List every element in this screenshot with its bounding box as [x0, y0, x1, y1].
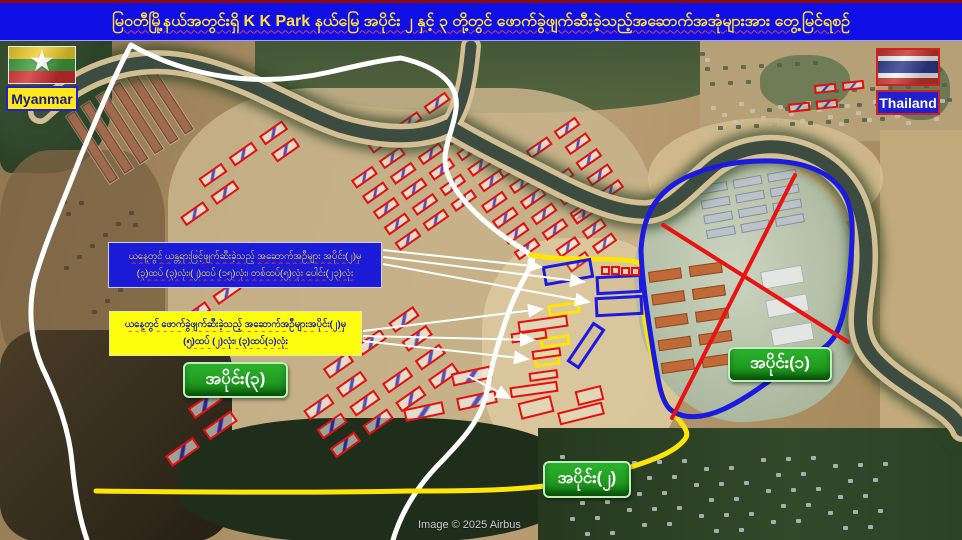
destroyed-building-outline	[330, 431, 361, 458]
village-house	[839, 122, 844, 126]
destroyed-building-outline	[564, 132, 591, 155]
destroyed-building-outline	[373, 197, 400, 220]
village-house	[710, 82, 715, 86]
annotated-satellite-map: မြဝတီမြို့နယ်အတွင်းရှိ K K Park နယ်မြေ အ…	[0, 0, 962, 540]
building-roof	[661, 359, 695, 374]
village-house	[862, 118, 867, 122]
red-outlined-building	[611, 266, 620, 275]
red-outlined-building	[517, 315, 568, 334]
village-house	[791, 488, 796, 492]
yellow-callout-line1: ယနေ့တွင် ဖောက်ခွဲဖျက်ဆီးခဲ့သည့် အဆောက်အဦ…	[125, 318, 346, 332]
village-house	[77, 255, 82, 259]
destroyed-building-outline	[503, 222, 530, 245]
building-roof	[740, 219, 770, 233]
blue-callout-box: ယနေ့တွင် ယန္တရားဖြင့်ဖျက်ဆီးခဲ့သည့် အဆော…	[108, 242, 382, 288]
village-house	[105, 299, 110, 303]
destroyed-building-outline	[582, 218, 607, 240]
village-house	[785, 107, 790, 111]
village-house	[585, 532, 590, 536]
village-house	[637, 492, 642, 496]
red-outlined-building	[557, 402, 605, 426]
destroyed-building-outline	[351, 166, 378, 189]
village-house	[672, 475, 677, 479]
destroyed-building-outline	[520, 187, 547, 210]
white-boundary-left	[31, 45, 131, 540]
village-house	[90, 244, 95, 248]
destroyed-building-outline	[445, 123, 472, 146]
destroyed-building-outline	[422, 208, 449, 231]
building-roof	[111, 82, 163, 155]
terrain-base	[0, 41, 962, 540]
village-house	[833, 464, 838, 468]
village-house	[749, 512, 754, 516]
village-house	[610, 531, 615, 535]
village-house	[803, 106, 808, 110]
destroyed-building-outline	[816, 99, 839, 110]
village-house	[722, 113, 727, 117]
pointer-arrow	[363, 341, 528, 359]
destroyed-building-outline	[450, 189, 477, 212]
village-house	[759, 64, 764, 68]
village-house	[761, 116, 766, 120]
village-house	[806, 503, 811, 507]
village-house	[845, 104, 850, 108]
destroyed-building-outline	[428, 362, 459, 389]
village-house	[839, 104, 844, 108]
village-house	[92, 310, 97, 314]
building-roof	[127, 72, 179, 145]
building-roof	[66, 111, 118, 184]
destroyed-building-outline	[394, 228, 421, 251]
village-house	[711, 106, 716, 110]
destroyed-building-outline	[514, 237, 541, 260]
white-boundary-main	[131, 45, 532, 540]
red-cross-line	[663, 225, 848, 342]
village-house	[853, 510, 858, 514]
village-house	[66, 212, 71, 216]
village-house	[817, 108, 822, 112]
village-house	[934, 117, 939, 121]
pointer-arrow	[383, 264, 589, 302]
destroyed-building-outline	[396, 111, 423, 134]
building-roof	[775, 213, 805, 227]
destroyed-building-outline	[509, 171, 536, 194]
village-house	[744, 481, 749, 485]
building-roof	[96, 91, 148, 164]
blue-outlined-building	[542, 258, 595, 286]
blue-outlined-building	[596, 274, 643, 295]
destroyed-building-outline	[259, 120, 288, 145]
destroyed-building-outline	[203, 410, 238, 440]
tree-patch-top-right-1	[760, 55, 850, 110]
destroyed-building-outline	[415, 344, 446, 371]
village-house	[736, 125, 741, 129]
village-house	[642, 523, 647, 527]
destroyed-building-outline	[417, 142, 444, 165]
destroyed-building-outline	[303, 394, 334, 421]
village-house	[694, 483, 699, 487]
destroyed-building-outline	[434, 107, 461, 130]
village-house	[947, 98, 952, 102]
village-house	[750, 109, 755, 113]
flag-sheen	[9, 47, 75, 83]
building-roof	[651, 290, 685, 305]
village-house	[848, 479, 853, 483]
section-2-label: အပိုင်း(၂)	[543, 461, 631, 498]
village-house	[777, 63, 782, 67]
village-house	[856, 111, 861, 115]
myanmar-label: Myanmar	[6, 86, 78, 111]
village-house	[821, 105, 826, 109]
destroyed-building-outline	[368, 131, 395, 154]
village-house	[781, 504, 786, 508]
village-house	[816, 487, 821, 491]
destroyed-building-outline	[569, 198, 596, 221]
village-house	[828, 511, 833, 515]
destroyed-building-outline	[526, 136, 553, 159]
destroyed-building-outline	[541, 218, 568, 241]
village-house	[741, 65, 746, 69]
village-house	[595, 516, 600, 520]
village-house	[705, 67, 710, 71]
pointer-arrow	[383, 257, 584, 282]
yellow-outlined-building	[533, 353, 560, 368]
red-outlined-building	[575, 385, 605, 406]
village-house	[786, 457, 791, 461]
village-house	[880, 117, 885, 121]
red-outlined-building	[631, 267, 640, 276]
destroyed-building-outline	[566, 251, 591, 273]
building-roof	[695, 307, 729, 322]
flag-sheen	[878, 50, 938, 84]
village-house	[632, 461, 637, 465]
village-house	[858, 463, 863, 467]
village-house	[796, 519, 801, 523]
village-house	[705, 58, 710, 62]
destroyed-building-outline	[388, 306, 419, 333]
village-house	[709, 498, 714, 502]
village-house	[800, 119, 805, 123]
village-house	[772, 123, 777, 127]
destroyed-building-outline	[586, 163, 613, 186]
destroyed-building-outline	[592, 232, 617, 254]
river	[452, 46, 471, 122]
village-house	[64, 266, 69, 270]
river-sandbank	[452, 46, 471, 122]
village-house	[776, 473, 781, 477]
destroyed-building-outline	[558, 183, 585, 206]
village-house	[723, 66, 728, 70]
destroyed-building-outline	[401, 177, 428, 200]
village-house	[129, 211, 134, 215]
village-house	[852, 88, 857, 92]
river-sandbank	[648, 118, 883, 238]
village-house	[828, 115, 833, 119]
fields-right	[880, 130, 962, 440]
building-roof	[738, 204, 768, 218]
pointer-arrow	[383, 250, 541, 267]
building-roof	[654, 313, 688, 328]
village-house	[728, 81, 733, 85]
village-house	[942, 83, 947, 87]
destroyed-building-outline	[814, 83, 837, 94]
village-house	[883, 462, 888, 466]
village-house	[838, 495, 843, 499]
red-outlined-building	[601, 266, 610, 275]
imagery-attribution: Image © 2025 Airbus	[418, 519, 521, 531]
village-house	[772, 123, 777, 127]
village-house	[719, 482, 724, 486]
building-roof	[706, 225, 736, 239]
village-house	[868, 525, 873, 529]
building-roof	[767, 169, 797, 183]
destroyed-building-outline	[492, 206, 519, 229]
village-house	[118, 288, 123, 292]
village-house	[580, 501, 585, 505]
village-house	[867, 118, 872, 122]
village-house	[627, 508, 632, 512]
destroyed-building-outline	[165, 437, 200, 467]
destroyed-building-outline	[555, 236, 580, 258]
village-house	[857, 103, 862, 107]
red-outlined-building	[517, 395, 554, 420]
red-outlined-building	[532, 347, 562, 360]
thailand-flag	[876, 48, 940, 86]
yellow-outlined-building	[539, 334, 570, 349]
destroyed-building-outline	[571, 203, 596, 225]
building-roof	[701, 196, 731, 210]
blue-outlined-building	[595, 295, 644, 317]
destroyed-building-outline	[336, 371, 367, 398]
destroyed-building-outline	[554, 117, 581, 140]
building-roof	[81, 101, 133, 174]
destroyed-building-outline	[575, 148, 602, 171]
village-house	[699, 514, 704, 518]
village-house	[724, 513, 729, 517]
village-house	[560, 455, 565, 459]
thailand-label: Thailand	[876, 90, 940, 115]
destroyed-building-outline	[401, 325, 432, 352]
red-outlined-building	[510, 329, 547, 344]
village-house	[662, 491, 667, 495]
village-house	[940, 99, 945, 103]
destroyed-building-outline	[597, 179, 624, 202]
destroyed-building-outline	[403, 401, 445, 422]
village-house	[746, 80, 751, 84]
forest-strip-top	[255, 41, 720, 113]
village-house	[700, 52, 705, 56]
red-outlined-building	[621, 267, 630, 276]
village-house	[570, 517, 575, 521]
destroyed-building-outline	[531, 202, 558, 225]
destroyed-building-outline	[271, 137, 300, 162]
village-house	[771, 520, 776, 524]
village-house	[811, 456, 816, 460]
village-house	[739, 528, 744, 532]
building-roof	[689, 262, 723, 277]
destroyed-building-outline	[439, 173, 466, 196]
building-roof	[765, 293, 809, 318]
building-roof	[698, 181, 728, 195]
village-house	[682, 459, 687, 463]
village-house	[761, 458, 766, 462]
building-roof	[770, 322, 814, 347]
village-house	[844, 119, 849, 123]
construction-ground-section2	[482, 238, 682, 470]
village-house	[790, 122, 795, 126]
destroyed-building-outline	[547, 167, 574, 190]
red-outlined-building	[509, 381, 558, 399]
building-roof	[772, 198, 802, 212]
destroyed-building-outline	[180, 201, 209, 226]
destroyed-building-outline	[384, 212, 411, 235]
building-roof	[703, 211, 733, 225]
blue-callout-line2: (၃)ထပ် (၃)လုံး၊(၂)ထပ် (၁၅)လုံး၊ တစ်ထပ်(၅…	[137, 267, 354, 281]
village-house	[79, 201, 84, 205]
destroyed-building-outline	[198, 163, 227, 188]
village-house	[605, 500, 610, 504]
destroyed-building-outline	[456, 390, 498, 411]
red-outlined-building	[529, 369, 559, 382]
village-house	[801, 472, 806, 476]
destroyed-building-outline	[478, 169, 505, 192]
destroyed-building-outline	[382, 367, 413, 394]
section-3-label: အပိုင်း(၃)	[183, 362, 288, 398]
destroyed-building-outline	[788, 102, 811, 113]
village-house	[103, 233, 108, 237]
page-title: မြဝတီမြို့နယ်အတွင်းရှိ K K Park နယ်မြေ အ…	[112, 10, 850, 34]
building-roof	[735, 190, 765, 204]
village-house	[834, 89, 839, 93]
village-house	[906, 121, 911, 125]
destroyed-building-outline	[467, 154, 494, 177]
village-house	[767, 108, 772, 112]
village-house	[878, 509, 883, 513]
village-house	[778, 105, 783, 109]
destroyed-building-outline	[349, 390, 380, 417]
village-house	[739, 102, 744, 106]
village-house	[795, 62, 800, 66]
village-house	[789, 112, 794, 116]
village-house	[733, 120, 738, 124]
village-house	[704, 467, 709, 471]
destroyed-building-outline	[428, 158, 455, 181]
building-roof	[658, 336, 692, 351]
blue-callout-line1: ယနေ့တွင် ယန္တရားဖြင့်ဖျက်ဆီးခဲ့သည့် အဆော…	[129, 250, 362, 264]
village-house	[116, 222, 121, 226]
yellow-callout-box: ယနေ့တွင် ဖောက်ခွဲဖျက်ဆီးခဲ့သည့် အဆောက်အဦ…	[109, 311, 362, 356]
village-house	[133, 223, 138, 227]
destroyed-building-outline	[395, 385, 426, 412]
village-house	[806, 101, 811, 105]
destroyed-building-outline	[456, 138, 483, 161]
section-1-label: အပိုင်း(၁)	[728, 347, 832, 382]
village-house	[714, 529, 719, 533]
village-house	[808, 121, 813, 125]
pointer-arrow	[363, 309, 542, 331]
section1-compound-ground	[619, 149, 879, 436]
village-house	[863, 494, 868, 498]
myanmar-flag: ★	[8, 46, 76, 84]
village-house	[677, 506, 682, 510]
village-house	[754, 124, 759, 128]
village-house	[870, 87, 875, 91]
destroyed-building-outline	[229, 141, 258, 166]
village-house	[826, 120, 831, 124]
destroyed-building-outline	[424, 92, 451, 115]
destroyed-building-outline	[362, 408, 393, 435]
blue-outlined-building	[566, 321, 605, 369]
yellow-callout-line2: (၅)ထပ် (၂)လုံး၊ (၃)ထပ်(၁)လုံး	[183, 335, 288, 349]
destroyed-building-outline	[316, 412, 347, 439]
destroyed-building-outline	[379, 146, 406, 169]
destroyed-building-outline	[451, 365, 493, 386]
building-roof	[770, 184, 800, 198]
building-roof	[648, 267, 682, 282]
village-house	[766, 489, 771, 493]
village-house	[647, 476, 652, 480]
building-roof	[692, 284, 726, 299]
village-house	[729, 466, 734, 470]
pointer-arrow	[468, 376, 510, 398]
destroyed-building-outline	[481, 191, 508, 214]
village-house	[652, 507, 657, 511]
destroyed-building-outline	[390, 162, 417, 185]
village-house	[667, 522, 672, 526]
village-house	[718, 126, 723, 130]
destroyed-building-outline	[411, 193, 438, 216]
destroyed-building-outline	[362, 181, 389, 204]
building-roof	[732, 175, 762, 189]
yellow-outlined-building	[547, 301, 580, 317]
destroyed-building-outline	[210, 180, 239, 205]
building-roof	[698, 330, 732, 345]
destroyed-building-outline	[842, 80, 865, 91]
village-house	[873, 478, 878, 482]
village-house	[657, 460, 662, 464]
pointer-arrow	[363, 336, 534, 340]
village-house	[734, 497, 739, 501]
village-house	[813, 61, 818, 65]
village-house	[62, 200, 67, 204]
destroyed-building-outline	[498, 156, 525, 179]
title-banner: မြဝတီမြို့နယ်အတွင်းရှိ K K Park နယ်မြေ အ…	[0, 0, 962, 41]
building-roof	[142, 62, 194, 135]
building-roof	[760, 265, 804, 290]
village-house	[843, 526, 848, 530]
